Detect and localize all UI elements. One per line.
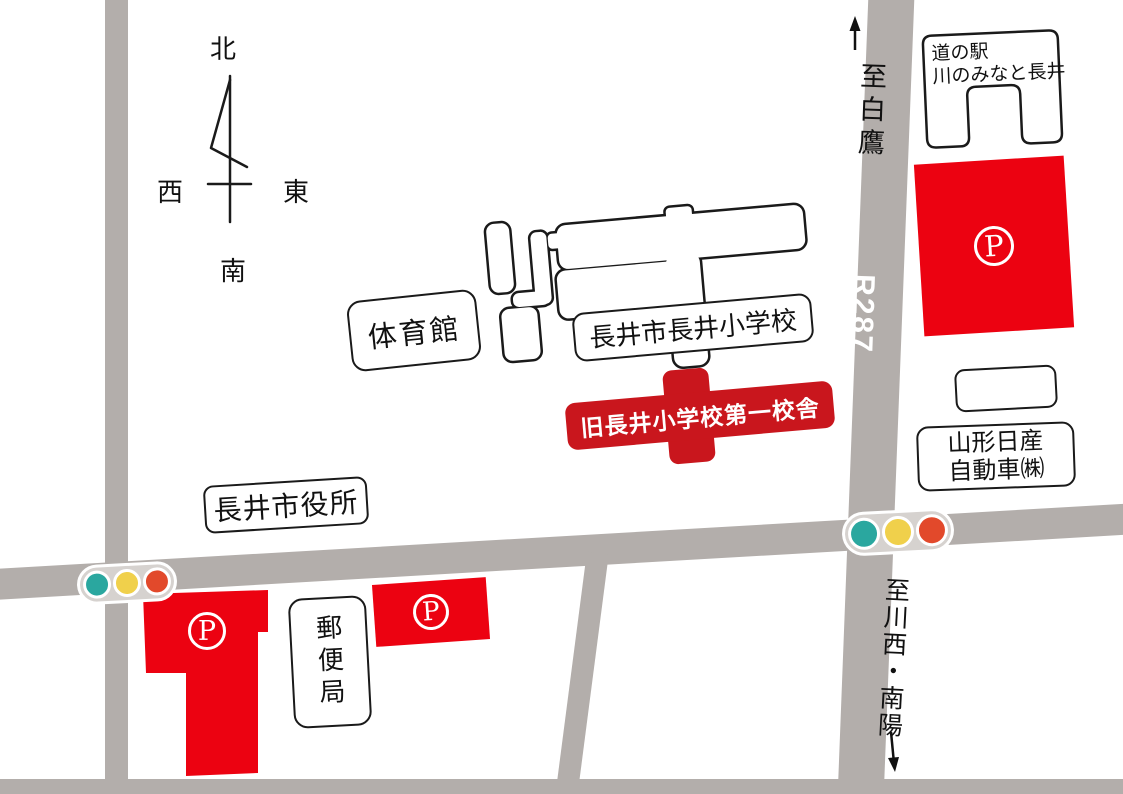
nissan-label-line1: 山形日産	[947, 427, 1044, 458]
parking-area-roadside-station: P	[914, 156, 1074, 337]
access-map: 北 西 東 南 至白鷹 R287 至川西・南陽 道の駅 川のみなと長井 P P …	[0, 0, 1123, 794]
compass-rose	[208, 76, 251, 222]
building-nissan: 山形日産 自動車㈱	[916, 421, 1076, 491]
signal-yellow-icon	[112, 568, 141, 597]
building-city-hall: 長井市役所	[203, 476, 370, 534]
signal-yellow-icon	[881, 515, 915, 549]
signal-green-icon	[847, 517, 881, 551]
compass-west-label: 西	[157, 172, 183, 209]
signal-red-icon	[915, 513, 949, 547]
nissan-label-line2: 自動車㈱	[948, 455, 1045, 486]
roadside-station-line2: 川のみなと長井	[932, 60, 1066, 89]
elementary-school-label: 長井市長井小学校	[588, 300, 798, 355]
compass-east-label: 東	[283, 172, 309, 209]
arrow-north-icon	[850, 16, 861, 50]
parking-icon: P	[973, 225, 1015, 267]
r287-label: R287	[844, 273, 881, 354]
to-shirataka-label: 至白鷹	[849, 61, 891, 161]
parking-icon: P	[412, 593, 450, 631]
building-elementary-school-label: 長井市長井小学校	[571, 293, 814, 363]
city-hall-label: 長井市役所	[212, 481, 359, 530]
traffic-light-r287	[841, 507, 955, 557]
compass-north-label: 北	[210, 29, 236, 66]
road-middle-vertical	[555, 552, 609, 794]
parking-icon: P	[188, 612, 226, 650]
building-gymnasium: 体育館	[346, 288, 483, 372]
road-bottom	[0, 779, 1123, 794]
post-office-label: 郵便局	[309, 613, 351, 711]
old-school-label: 旧長井小学校第一校舎	[579, 388, 821, 443]
to-kawanishi-nanyo-label: 至川西・南陽	[870, 576, 914, 740]
building-unlabeled	[954, 364, 1058, 412]
traffic-light-west	[76, 560, 178, 605]
parking-area-post-office: P	[372, 577, 490, 647]
signal-green-icon	[82, 570, 111, 599]
compass-south-label: 南	[220, 251, 246, 288]
building-post-office: 郵便局	[288, 595, 373, 729]
road-west-vertical	[105, 0, 128, 794]
signal-red-icon	[142, 567, 171, 596]
gymnasium-label: 体育館	[366, 305, 463, 356]
roadside-station-label: 道の駅 川のみなと長井	[931, 37, 1066, 89]
parking-area-city-hall: P	[143, 588, 269, 778]
